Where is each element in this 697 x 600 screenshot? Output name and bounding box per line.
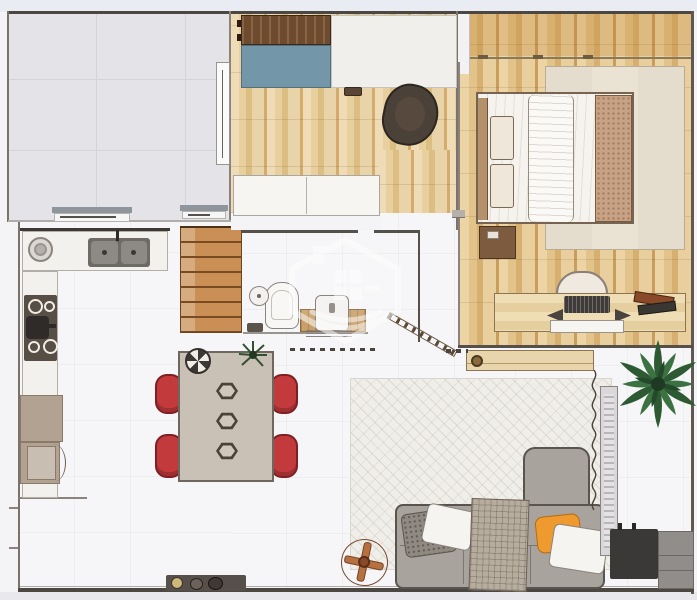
table-plant-icon [236, 338, 270, 372]
railing-dash-end [446, 349, 468, 353]
burner [43, 339, 58, 354]
cable-squiggle [586, 370, 602, 520]
sofa-cushion-line [530, 546, 531, 584]
room-tiled [8, 14, 230, 221]
nightstand-item [487, 231, 499, 239]
wall-bathroom-right [418, 230, 420, 342]
sink-drain [102, 250, 107, 255]
rail-tab [583, 55, 593, 59]
tv-knob [632, 523, 636, 530]
foot-blanket [595, 95, 632, 222]
door-swing-mark [9, 507, 18, 509]
double-bed [476, 92, 634, 224]
tp-dot [257, 294, 261, 298]
headboard [478, 98, 488, 220]
pot [26, 316, 49, 339]
doormat-item [171, 577, 183, 589]
pot-handle [48, 324, 56, 328]
media-cabinet [658, 531, 694, 589]
bedroom-floor-shade [460, 14, 691, 56]
walnut-cabinet [241, 15, 331, 45]
rail-tab [533, 55, 543, 59]
wall-vent-slot [60, 216, 116, 218]
cabinet-handle [237, 20, 241, 27]
cabinet-drawer-line [659, 570, 693, 571]
sideboard-divider [306, 177, 307, 214]
bed-pillow [490, 164, 514, 208]
cabinet-drawer-line [659, 555, 693, 556]
doormat-item [208, 577, 223, 590]
tv-console [610, 529, 658, 579]
wall-vent-slot [188, 214, 210, 216]
white-desk [331, 15, 457, 88]
wall-bedroom-left [458, 62, 460, 345]
duvet [528, 95, 574, 222]
glass-door-leaf [216, 62, 230, 165]
office-chair-seat [395, 97, 425, 131]
faucet [116, 230, 119, 241]
pantry-cabinet [20, 395, 63, 442]
burner [28, 299, 43, 314]
floorplan-canvas [0, 0, 697, 600]
dining-chair [270, 374, 298, 414]
blue-desk-panel [241, 45, 331, 88]
burner [44, 301, 55, 312]
door-swing-mark [9, 547, 18, 549]
burner [28, 341, 40, 353]
cabinet-handle [237, 34, 241, 41]
round-plate-inner [34, 243, 47, 256]
wall-stub-office-door [452, 210, 465, 218]
wall-top [8, 11, 694, 14]
dining-chair [270, 434, 298, 478]
laptop [564, 296, 610, 313]
dishwasher-arc [42, 444, 66, 482]
shelf-items [247, 323, 263, 332]
wall-left-top [7, 11, 9, 222]
watermark-house-logo-icon [280, 226, 412, 358]
wood-console-shelf [466, 350, 594, 371]
under-desk-drawer [550, 320, 624, 333]
fruit-bowl [185, 348, 211, 374]
potted-plant-icon [610, 336, 697, 432]
outside-bottom [0, 592, 697, 600]
glass-door-line [222, 70, 223, 158]
rail-tab [478, 55, 488, 59]
desk-tray [344, 87, 362, 96]
wall-right [691, 11, 694, 594]
wood-sliding-door [180, 227, 242, 333]
doormat-item [190, 578, 203, 590]
sofa-cushion-line [463, 546, 464, 584]
sink-drain [131, 250, 136, 255]
tv-knob [618, 523, 622, 530]
plaid-throw [468, 498, 529, 592]
wardrobe-rail [462, 57, 691, 59]
console-knob [471, 355, 483, 367]
bed-pillow [490, 116, 514, 160]
